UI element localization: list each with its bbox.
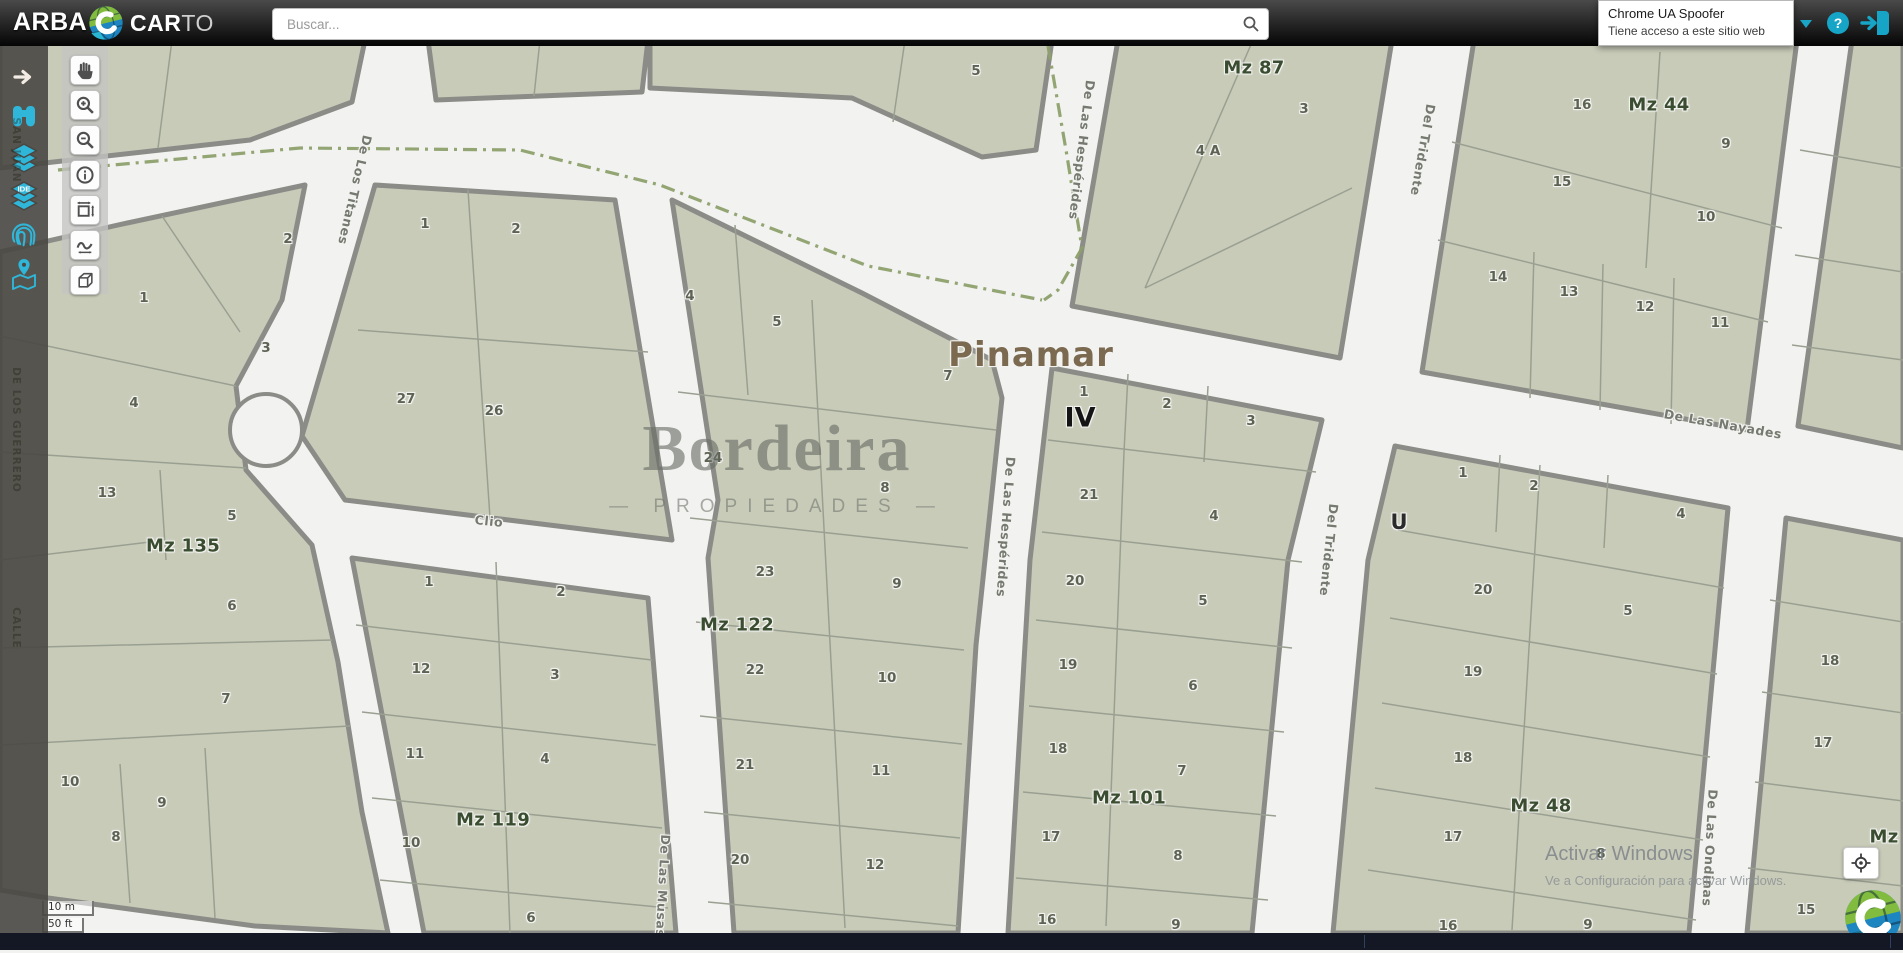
map-pin-icon (9, 258, 39, 290)
sidebar-item-fingerprint[interactable] (0, 218, 48, 248)
left-sidebar: IDE (0, 46, 48, 933)
zoom-out-icon (75, 130, 95, 150)
measure-area-button[interactable] (70, 195, 100, 225)
binoculars-icon (10, 102, 38, 130)
carto-wordmark-bold: CAR (130, 10, 181, 36)
box-3d-icon (75, 270, 95, 290)
bottom-taskbar-strip (0, 933, 1903, 950)
extension-tooltip-title: Chrome UA Spoofer (1608, 6, 1784, 21)
carto-globe-icon (88, 5, 124, 41)
locate-me-button[interactable] (1843, 847, 1879, 879)
carto-wordmark-light: TO (181, 10, 214, 36)
help-button[interactable]: ? (1827, 12, 1849, 34)
map-canvas[interactable] (0, 0, 1903, 950)
zoom-in-button[interactable] (70, 90, 100, 120)
logout-button[interactable] (1860, 8, 1892, 38)
search-box (272, 8, 1269, 40)
scale-imperial: 50 ft (42, 918, 84, 933)
chevron-down-icon[interactable] (1800, 20, 1812, 28)
sidebar-item-layers[interactable] (0, 142, 48, 174)
map-toolbar (62, 46, 108, 294)
extension-tooltip-subt: Tiene acceso a este sitio web (1608, 24, 1784, 38)
cul-de-sac (230, 394, 302, 466)
sidebar-item-search[interactable] (0, 102, 48, 130)
sidebar-item-ide-layers[interactable]: IDE (0, 180, 48, 212)
search-icon[interactable] (1242, 15, 1260, 38)
sidebar-expand-button[interactable] (0, 64, 48, 90)
layers-icon (9, 142, 39, 174)
top-bar: ARBA CARTO Chrome UA Spoofer Tiene acces… (0, 0, 1903, 46)
scale-metric: 10 m (42, 901, 94, 916)
sidebar-item-location[interactable] (0, 258, 48, 290)
zoom-out-button[interactable] (70, 125, 100, 155)
info-icon (75, 165, 95, 185)
exit-door-icon (1860, 8, 1892, 38)
arrow-right-icon (10, 64, 38, 90)
box-3d-button[interactable] (70, 265, 100, 295)
info-button[interactable] (70, 160, 100, 190)
search-input[interactable] (273, 9, 1268, 39)
ide-label: IDE (18, 184, 31, 193)
measure-line-icon (75, 235, 95, 255)
fingerprint-icon (9, 218, 39, 248)
ide-layers-icon: IDE (9, 180, 39, 212)
measure-line-button[interactable] (70, 230, 100, 260)
carto-wordmark: CARTO (130, 10, 214, 37)
extension-tooltip: Chrome UA Spoofer Tiene acceso a este si… (1598, 0, 1794, 46)
hand-icon (75, 60, 95, 80)
measure-area-icon (75, 200, 95, 220)
map-scale-control: 10 m 50 ft (42, 901, 94, 933)
arba-logo: ARBA (13, 8, 87, 37)
crosshair-icon (1849, 851, 1873, 875)
zoom-in-icon (75, 95, 95, 115)
pan-tool-button[interactable] (70, 55, 100, 85)
